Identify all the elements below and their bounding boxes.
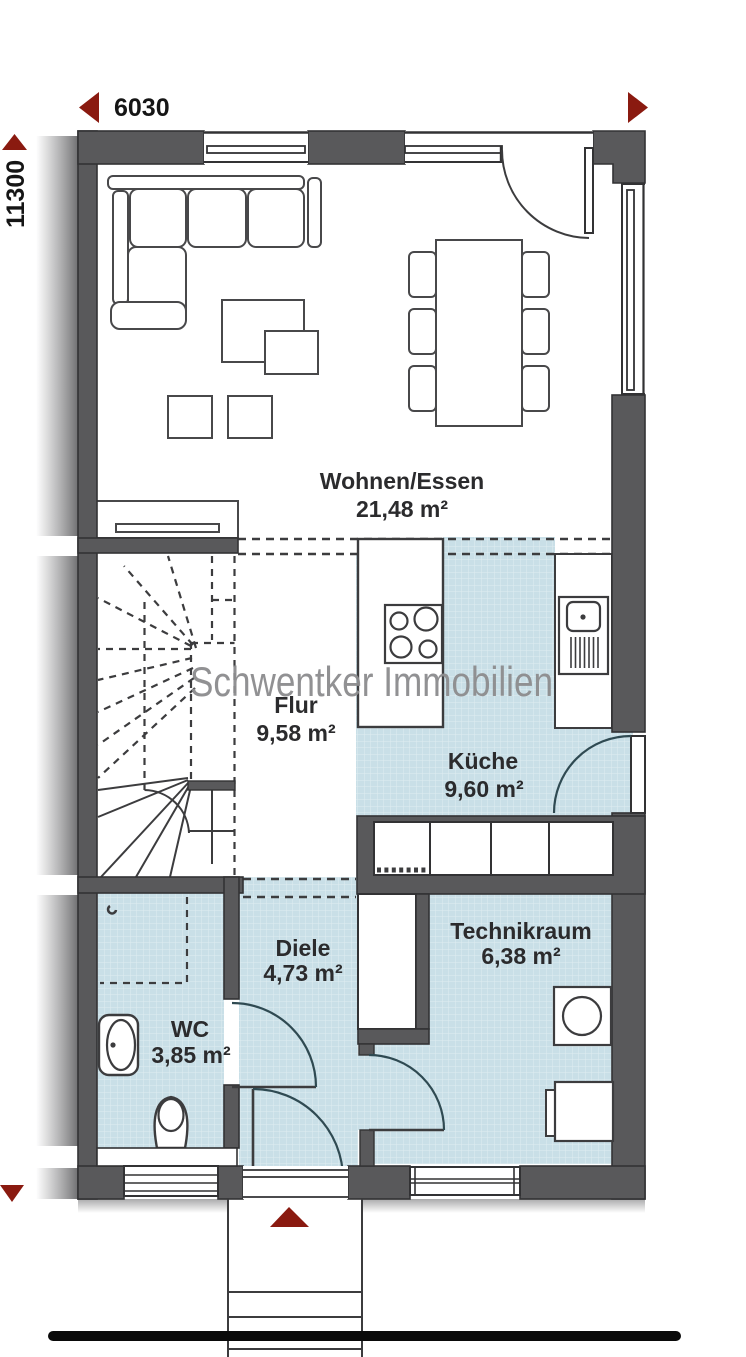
svg-text:9,60 m²: 9,60 m²	[444, 776, 524, 802]
svg-text:Technikraum: Technikraum	[450, 918, 591, 944]
svg-text:9,58 m²: 9,58 m²	[256, 720, 336, 746]
svg-text:Schwentker Immobilien: Schwentker Immobilien	[190, 658, 553, 705]
svg-text:6,38 m²: 6,38 m²	[481, 943, 561, 969]
svg-text:Küche: Küche	[448, 748, 518, 774]
svg-text:11300: 11300	[2, 160, 30, 228]
svg-text:Wohnen/Essen: Wohnen/Essen	[320, 468, 484, 494]
svg-text:3,85 m²: 3,85 m²	[151, 1042, 231, 1068]
svg-text:Diele: Diele	[276, 935, 331, 961]
svg-text:4,73 m²: 4,73 m²	[263, 960, 343, 986]
svg-text:WC: WC	[171, 1016, 209, 1042]
svg-text:21,48 m²: 21,48 m²	[356, 496, 448, 522]
svg-text:6030: 6030	[114, 94, 170, 122]
